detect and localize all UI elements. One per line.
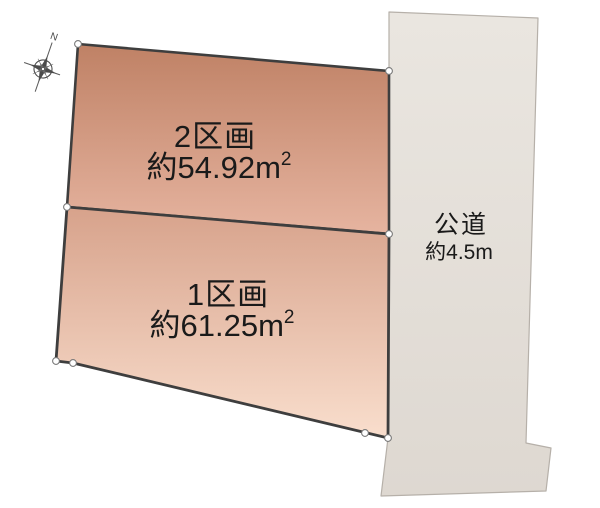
parcel-2-area-label: 約54.92m2: [147, 149, 292, 185]
boundary-marker: [75, 41, 82, 48]
boundary-marker: [362, 430, 369, 437]
boundary-marker: [385, 435, 392, 442]
compass-rose-icon: N: [16, 26, 72, 98]
compass-north-label: N: [49, 31, 59, 44]
road-name-label: 公道: [434, 211, 488, 239]
boundary-marker: [53, 358, 60, 365]
parcel-2-name-label: 2区画: [174, 119, 256, 154]
lot-plan-canvas: N 2区画 約54.92m2 1区画 約61.25m2 公道 約4.5m: [0, 0, 600, 508]
road-width-label: 約4.5m: [425, 241, 493, 264]
lot-plan-diagram: N 2区画 約54.92m2 1区画 約61.25m2 公道 約4.5m: [0, 0, 600, 508]
parcel-1-area-label: 約61.25m2: [150, 307, 295, 343]
parcel-1-name-label: 1区画: [187, 277, 269, 312]
boundary-marker: [386, 68, 393, 75]
boundary-marker: [64, 204, 71, 211]
boundary-marker: [70, 360, 77, 367]
boundary-marker: [386, 231, 393, 238]
